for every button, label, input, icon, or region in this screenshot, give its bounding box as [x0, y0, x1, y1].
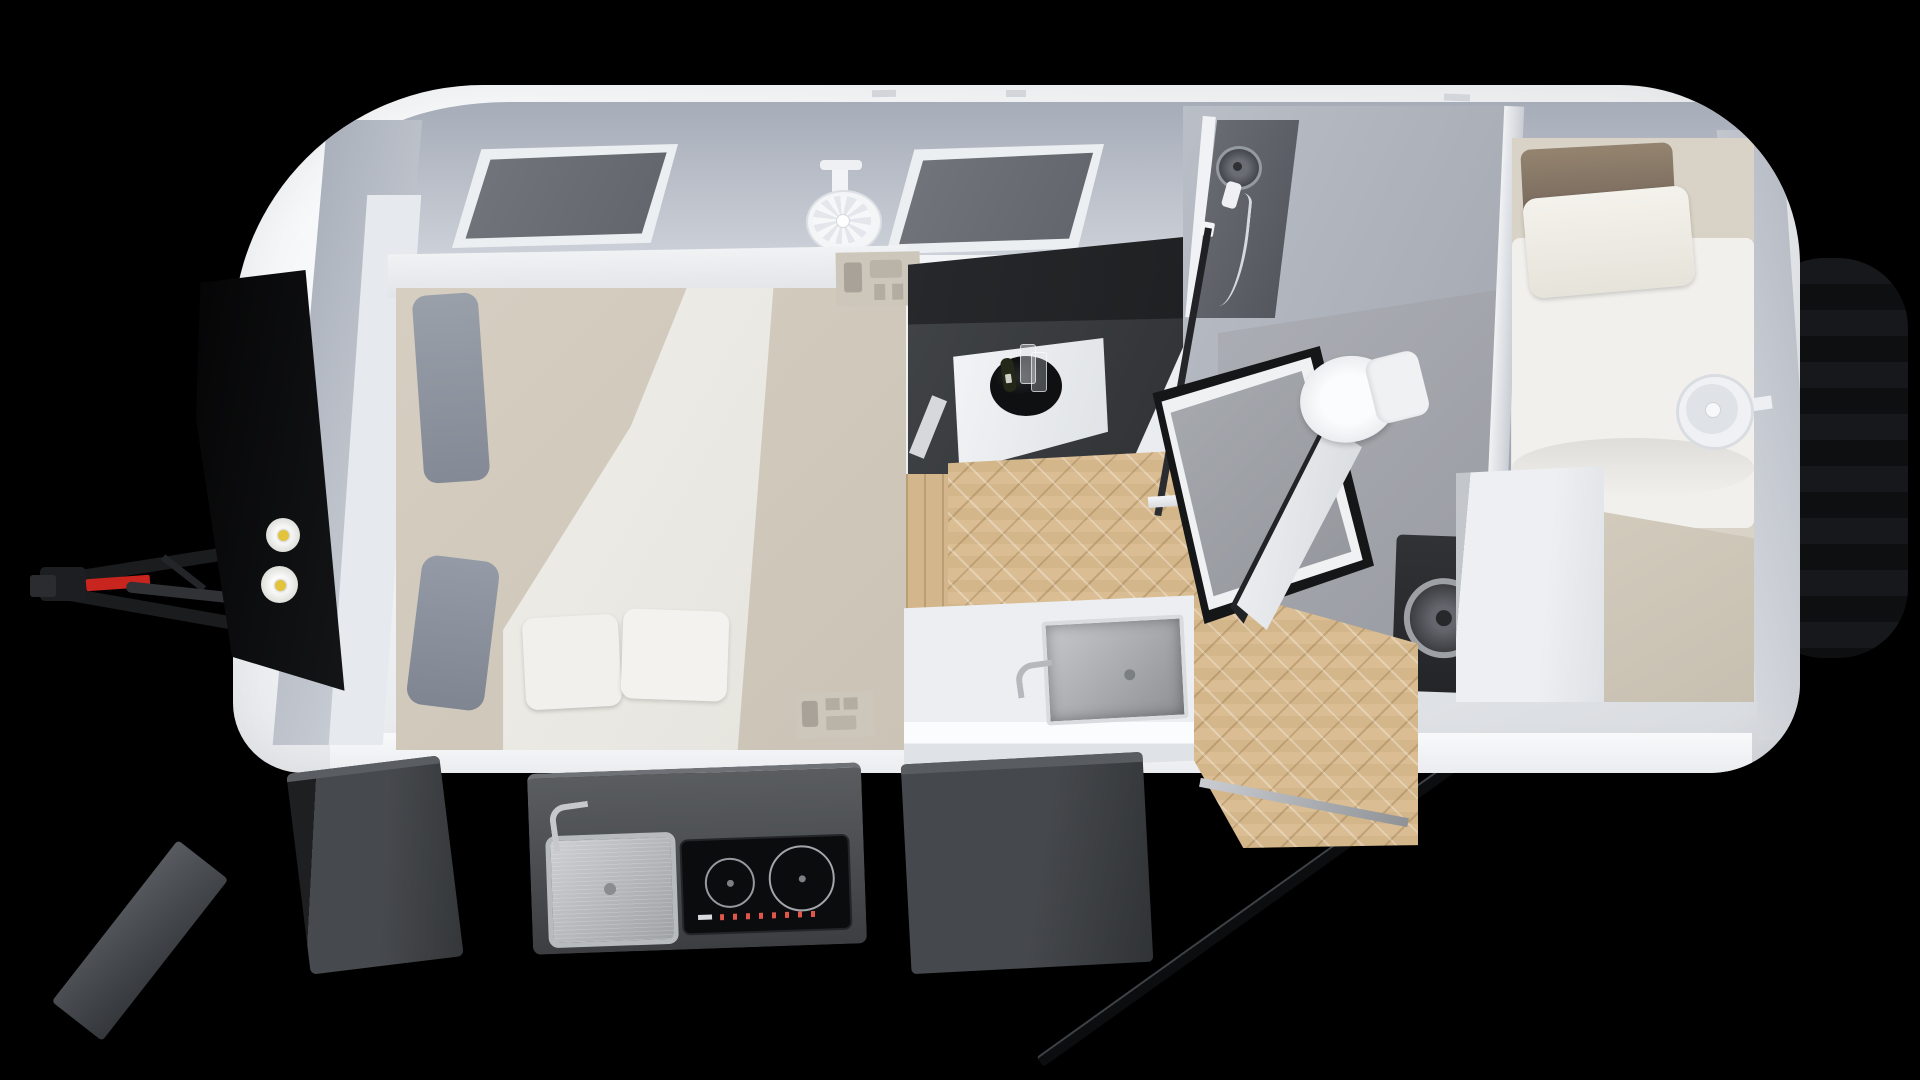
- power-outlet: [801, 701, 818, 728]
- kitchen-sink: [1041, 614, 1188, 725]
- burner-center: [799, 875, 806, 882]
- wood-step: [906, 474, 954, 616]
- front-hatch-lid: [52, 840, 229, 1041]
- double-bed: [396, 288, 906, 750]
- pillow-grey: [405, 554, 501, 712]
- gas-bottle-valve: [275, 580, 286, 591]
- roof-seam: [872, 90, 896, 97]
- wall-fan-icon: [1676, 370, 1776, 454]
- wine-glass: [1031, 352, 1047, 392]
- control-plate: [870, 260, 902, 279]
- induction-hob: [679, 834, 852, 936]
- washer-drum-center: [1436, 610, 1453, 627]
- hitch-coupler: [30, 575, 56, 597]
- window-2: [886, 144, 1104, 254]
- pillow-grey: [412, 292, 491, 484]
- burner-center: [727, 880, 734, 887]
- ceiling-fan-icon: [800, 160, 896, 256]
- rocker-switch: [892, 284, 903, 300]
- window-1: [452, 144, 678, 248]
- gas-bottle-valve: [278, 530, 289, 541]
- sink-drain: [604, 883, 616, 895]
- switch-panel: [836, 251, 921, 306]
- sink-drain: [1124, 669, 1136, 681]
- roof-seam: [1006, 90, 1026, 97]
- burner-ring: [704, 857, 756, 909]
- gas-bottle: [266, 518, 300, 552]
- storage-hatch-open: [901, 752, 1154, 974]
- pillow-white: [522, 614, 623, 711]
- power-outlet: [844, 262, 863, 292]
- rocker-switch: [825, 698, 839, 710]
- wardrobe-cabinet: [1456, 466, 1604, 702]
- wine-label: [1005, 374, 1012, 384]
- outdoor-kitchen: [527, 762, 867, 955]
- hob-led-controls: [720, 911, 816, 920]
- rocker-switch: [843, 697, 857, 709]
- switch-panel: [795, 691, 875, 740]
- control-plate: [826, 715, 856, 730]
- scene: [0, 0, 1920, 1080]
- bottom-wall-band: [1412, 733, 1752, 777]
- shower-head-center: [1233, 162, 1242, 171]
- burner-ring: [768, 844, 836, 912]
- gas-bottle: [261, 566, 298, 603]
- pillow-white: [620, 608, 729, 702]
- fan-mount: [820, 160, 862, 170]
- storage-hatch-open: [286, 755, 463, 974]
- pillow-white: [1522, 185, 1696, 299]
- roof-seam: [1444, 94, 1470, 102]
- rocker-switch: [874, 284, 885, 300]
- fan-hub: [1705, 402, 1721, 418]
- hob-display: [698, 915, 712, 920]
- faucet-icon: [548, 801, 594, 852]
- fan-hub: [836, 214, 850, 228]
